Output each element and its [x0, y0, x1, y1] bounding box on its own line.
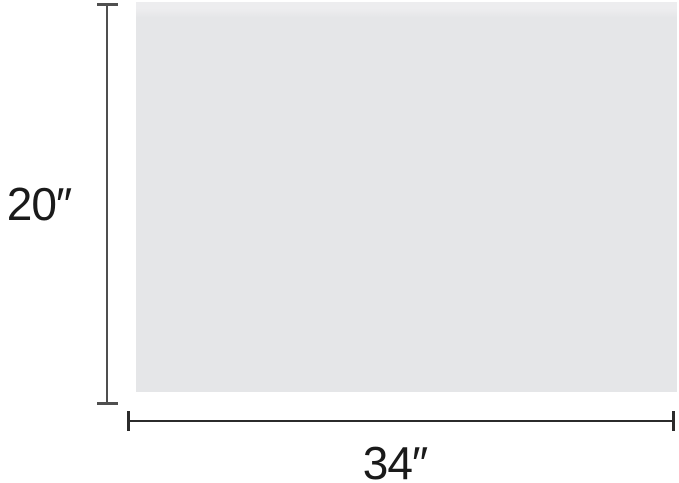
measured-rectangle: [136, 2, 677, 392]
height-dimension-cap-bottom: [97, 402, 118, 405]
width-dimension-label: 34″: [345, 440, 445, 483]
dimension-diagram: 20″ 34″: [0, 0, 679, 483]
height-dimension-cap-top: [97, 3, 118, 6]
height-dimension-label: 20″: [0, 181, 78, 227]
width-dimension-line: [128, 420, 675, 422]
width-dimension-cap-left: [127, 411, 130, 431]
height-dimension-line: [106, 5, 108, 404]
width-dimension-cap-right: [672, 411, 675, 431]
